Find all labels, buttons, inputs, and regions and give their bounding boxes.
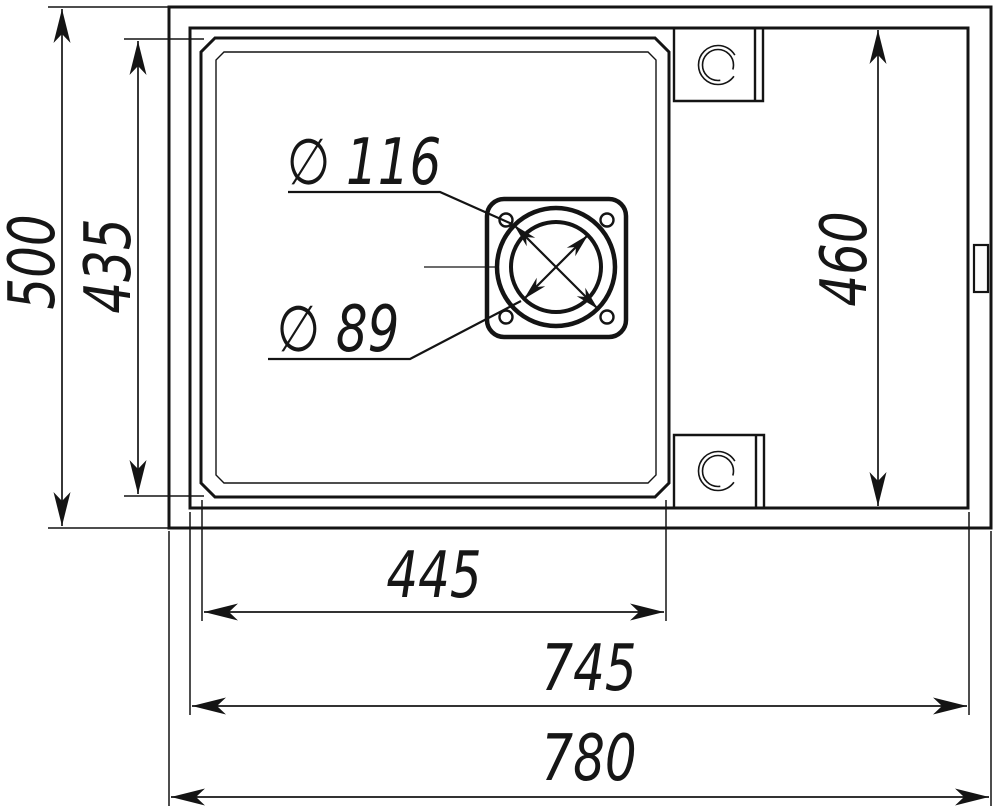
mounting-clip-top [674,29,763,101]
dim-label-overall-depth: 500 [0,214,70,309]
mounting-clip-bottom [674,435,764,507]
overflow-notch [974,245,988,292]
dim-label-bowl-depth: 435 [71,218,146,313]
dim-label-drain-inner-diameter: ∅ 89 [277,292,400,367]
technical-drawing-page: 500 435 460 445 745 780 ∅ 116 ∅ 89 [0,0,1000,810]
drain-screw-hole [601,214,614,227]
clip-hole-outer-arc [699,46,738,85]
dim-label-bowl-width: 445 [386,538,481,613]
dim-label-drain-outer-diameter: ∅ 116 [287,125,442,200]
sink-technical-drawing: 500 435 460 445 745 780 ∅ 116 ∅ 89 [0,0,1000,810]
clip-hole-inner-arc [703,50,734,81]
dim-label-rim-depth: 460 [807,211,882,306]
drain-screw-hole [601,311,614,324]
clip-hole-inner-arc [703,456,734,487]
dim-label-overall-width: 780 [541,721,636,796]
clip-hole-outer-arc [699,452,738,491]
dim-label-rim-width: 745 [541,631,636,706]
